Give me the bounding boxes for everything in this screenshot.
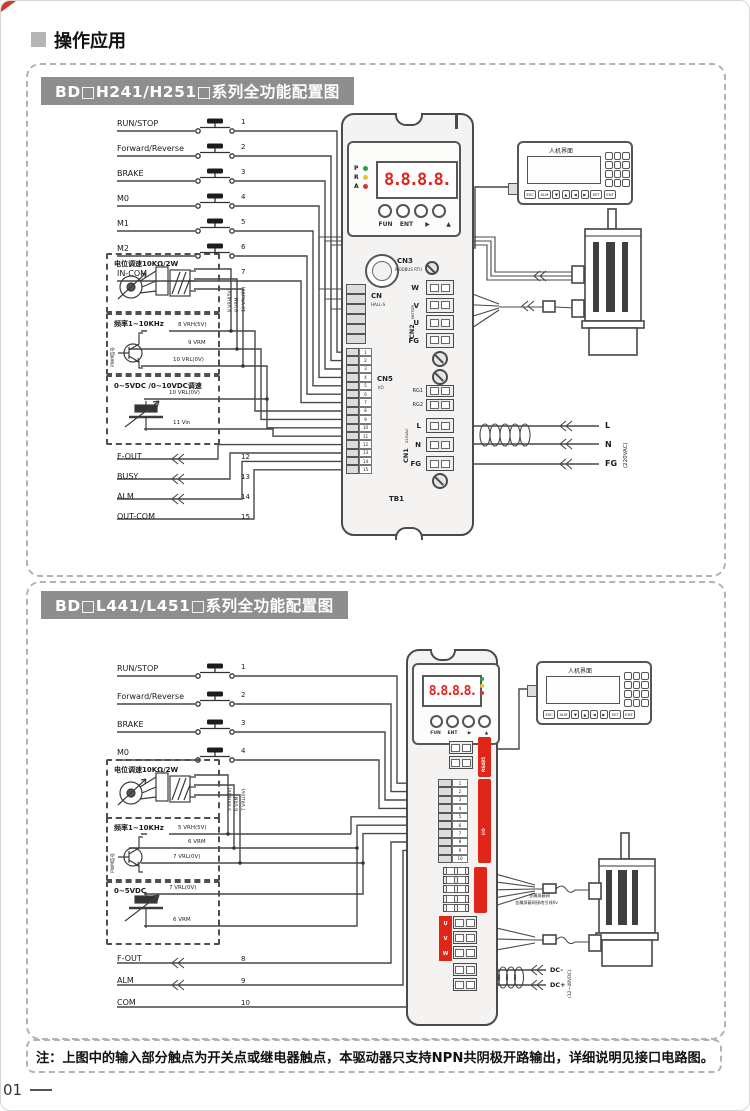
pin-label: 6 VRM bbox=[173, 917, 191, 923]
hmi-function-keys: ESCALM▼▲◀▶SETENT bbox=[543, 710, 635, 719]
input-label: Forward/Reverse bbox=[117, 144, 184, 153]
page-number: 01 bbox=[3, 1081, 52, 1099]
rg-pin-labels: RG1RG2 bbox=[397, 385, 423, 413]
pin-number: 9 bbox=[241, 977, 245, 985]
input-label: RUN/STOP bbox=[117, 119, 158, 128]
diagram1-outputs: F-OUT 12 BUSY 13 ALM 14 OUT-COM 15 bbox=[111, 451, 271, 531]
pin-number: 13 bbox=[241, 473, 250, 481]
output-label: ALM bbox=[117, 976, 134, 985]
button-label: FUN bbox=[427, 731, 444, 736]
input-signal-row: M1 5 bbox=[111, 218, 271, 243]
button-labels: FUNENT▶▲ bbox=[375, 221, 459, 228]
pwm-side-label: PWM信号 bbox=[110, 853, 116, 873]
pin-number: 4 bbox=[241, 747, 245, 755]
up-button bbox=[432, 204, 446, 218]
pin-label: 7 VRL(0V) bbox=[169, 885, 196, 891]
dc-voltage-label: (12~48VDC) bbox=[568, 970, 573, 998]
led-dot bbox=[480, 677, 484, 681]
terminal-cell: 1 bbox=[346, 348, 372, 356]
dc-supply-label: DC+ bbox=[550, 978, 566, 993]
screw-terminal-icon bbox=[432, 473, 448, 489]
hmi-key: ALM bbox=[538, 190, 551, 199]
clamp-terminal bbox=[426, 333, 454, 348]
hmi-key: ENT bbox=[604, 190, 617, 199]
output-signal-row: ALM 14 bbox=[111, 491, 271, 511]
seven-segment-display: 8.8.8.8. bbox=[376, 161, 458, 199]
pin-number: 15 bbox=[241, 513, 250, 521]
ent-button bbox=[396, 204, 410, 218]
right-button bbox=[414, 204, 428, 218]
power-connector bbox=[453, 916, 477, 959]
dc-source-symbol bbox=[108, 377, 218, 443]
input-signal-row: BRAKE 3 bbox=[111, 168, 271, 193]
rg-pin-label: RG2 bbox=[397, 399, 423, 413]
hmi-key: ESC bbox=[543, 710, 555, 719]
pin-number: 10 bbox=[241, 999, 250, 1007]
terminal-cell: 9 bbox=[346, 415, 372, 423]
terminal-cell: 3 bbox=[438, 796, 468, 804]
switch-icon bbox=[195, 192, 235, 210]
switch-icon bbox=[195, 718, 235, 736]
hmi-key: ▼ bbox=[571, 710, 579, 719]
shield-note-line2: 金属屏蔽网接地引线0v bbox=[515, 900, 558, 906]
terminal-cell: 8 bbox=[346, 407, 372, 415]
cn3-sub-label: MODBUS RTU bbox=[395, 267, 422, 272]
hmi-lcd-screen bbox=[527, 156, 601, 184]
led-dot bbox=[363, 175, 368, 180]
pin-number: 2 bbox=[241, 691, 245, 699]
pot-pin-rot-label: 7 VRL(0V) bbox=[242, 789, 247, 811]
terminal-cell: 5 bbox=[346, 382, 372, 390]
page-number-dash bbox=[30, 1089, 52, 1091]
clamp-terminal bbox=[426, 315, 454, 330]
input-label: M1 bbox=[117, 219, 129, 228]
hmi-key: ESC bbox=[524, 190, 536, 199]
ac-supply-label: L bbox=[605, 417, 617, 436]
input-signal-row: RUN/STOP 1 bbox=[111, 663, 271, 691]
hmi-key: ▲ bbox=[562, 190, 570, 199]
display-digits: 8.8.8.8. bbox=[429, 684, 476, 699]
hmi-key: SET bbox=[590, 190, 602, 199]
hmi-lcd-screen bbox=[546, 676, 620, 704]
rg-terminal-blocks bbox=[426, 385, 454, 413]
potentiometer-symbol bbox=[108, 255, 218, 311]
input-label: M0 bbox=[117, 748, 129, 757]
clamp-terminal bbox=[426, 280, 454, 295]
pin-label: 10 VRL(0V) bbox=[169, 390, 200, 396]
clamp-terminal bbox=[426, 298, 454, 313]
button-label: ▲ bbox=[438, 221, 459, 228]
button-labels: FUNENT▶▲ bbox=[427, 731, 495, 736]
ac-terminal-blocks bbox=[426, 418, 454, 475]
pin-number: 6 bbox=[241, 243, 245, 251]
rs485-strip-label: RS485 bbox=[481, 757, 486, 772]
hmi-key: ▶ bbox=[581, 190, 589, 199]
diagram2-outputs: F-OUT 8 ALM 9 COM 10 bbox=[111, 953, 271, 1019]
seven-segment-display: 8.8.8.8. bbox=[422, 675, 482, 707]
vdc-box: 0~5VDC /0~10VDC调速 bbox=[106, 375, 220, 445]
output-label: OUT-COM bbox=[117, 512, 155, 521]
led-row: P bbox=[354, 165, 374, 174]
status-leds: P R A bbox=[354, 165, 374, 192]
terminal-cell: 6 bbox=[438, 821, 468, 829]
hmi-title: 人机界面 bbox=[549, 146, 573, 155]
led-label: R bbox=[354, 174, 359, 181]
terminal-cell: 2 bbox=[438, 787, 468, 795]
hmi-key: ALM bbox=[557, 710, 570, 719]
dc-connector bbox=[453, 963, 477, 991]
cn3-label: CN3 bbox=[397, 257, 413, 265]
dc-supply-labels: DC-DC+ bbox=[550, 963, 566, 993]
cn3-round-connector bbox=[365, 254, 399, 288]
terminal-cell: 15 bbox=[346, 465, 372, 473]
corner-mark bbox=[1, 1, 16, 12]
pin-label: 11 Vin bbox=[173, 420, 190, 426]
footer-note: 注：上图中的输入部分触点为开关点或继电器触点，本驱动器只支持NPN共阴极开路输出… bbox=[36, 1047, 714, 1066]
hmi-function-keys: ESCALM▼▲◀▶SETENT bbox=[524, 190, 616, 199]
pin-label: 5 VRH(5V) bbox=[178, 825, 207, 831]
cn5-label: CN5 bbox=[377, 375, 393, 383]
pin-label: 10 VRL(0V) bbox=[173, 357, 204, 363]
clamp-terminal bbox=[426, 437, 454, 452]
terminal-cell: 4 bbox=[438, 804, 468, 812]
output-signal-row: BUSY 13 bbox=[111, 471, 271, 491]
screw-terminal-icon bbox=[432, 351, 448, 367]
clamp-terminal bbox=[426, 456, 454, 471]
shield-note-line1: 金属屏蔽网 bbox=[529, 893, 550, 899]
button-label: ▲ bbox=[478, 731, 495, 736]
input-label: Forward/Reverse bbox=[117, 692, 184, 701]
terminal-cell: 10 bbox=[438, 855, 468, 863]
output-label: BUSY bbox=[117, 472, 138, 481]
terminal-cell: 8 bbox=[438, 838, 468, 846]
output-signal-row: F-OUT 8 bbox=[111, 953, 271, 975]
page-title: 操作应用 bbox=[54, 27, 126, 53]
ac-supply-label: N bbox=[605, 436, 617, 455]
input-label: BRAKE bbox=[117, 720, 144, 729]
cn5-sub: I/O bbox=[378, 385, 384, 390]
pot-speed-box: 电位调速10KΩ/2W bbox=[106, 759, 220, 819]
vdc-box: 0~5VDC bbox=[106, 881, 220, 945]
pwm-side-label: PWM信号 bbox=[110, 347, 116, 367]
hmi-key: ▶ bbox=[600, 710, 608, 719]
pin-number: 2 bbox=[241, 143, 245, 151]
pin-number: 14 bbox=[241, 493, 250, 501]
button-label: ▶ bbox=[417, 221, 438, 228]
switch-icon bbox=[195, 117, 235, 135]
led-dot bbox=[480, 684, 484, 688]
cn-hall-connector bbox=[346, 284, 366, 344]
led-row: R bbox=[354, 174, 374, 183]
clamp-terminal bbox=[426, 399, 454, 411]
led-label: A bbox=[354, 183, 359, 190]
pin-label: 9 VRM bbox=[188, 340, 206, 346]
driver-front-panel: P R A 8.8.8.8. FUNENT▶▲ bbox=[347, 141, 461, 237]
input-signal-row: BRAKE 3 bbox=[111, 719, 271, 747]
pin-number: 7 bbox=[241, 268, 245, 276]
io-terminal-strip: 1 2 3 4 5 6 7 8 bbox=[438, 779, 468, 863]
cn-hall-label: CN bbox=[371, 292, 382, 300]
uvw-label: W bbox=[443, 951, 449, 957]
rg-pin-label: RG1 bbox=[397, 385, 423, 399]
pot-pin-rot-label: 9 VRM bbox=[235, 298, 240, 312]
clamp-terminal bbox=[426, 385, 454, 397]
switch-icon bbox=[195, 690, 235, 708]
hmi-key: ◀ bbox=[590, 710, 598, 719]
switch-icon bbox=[195, 167, 235, 185]
pot-pin-rot-label: 5 VRH(5V) bbox=[228, 788, 233, 811]
led-dot bbox=[363, 184, 368, 189]
right-button bbox=[462, 715, 475, 728]
hall-strip bbox=[474, 867, 487, 913]
ac-supply-label: FG bbox=[605, 455, 617, 474]
diagram2-title: BD□L441/L451□系列全功能配置图 bbox=[41, 591, 348, 619]
button-label: ENT bbox=[396, 221, 417, 228]
terminal-cell: 4 bbox=[346, 373, 372, 381]
pin-number: 1 bbox=[241, 663, 245, 671]
hmi-title: 人机界面 bbox=[568, 666, 592, 675]
terminal-cell: 7 bbox=[438, 829, 468, 837]
mount-notch bbox=[430, 649, 456, 661]
diagram1-title: BD□H241/H251□系列全功能配置图 bbox=[41, 77, 354, 105]
hmi-keypad bbox=[624, 672, 649, 707]
terminal-cell: 11 bbox=[346, 432, 372, 440]
pin-label: 6 VRM bbox=[188, 839, 206, 845]
pin-number: 4 bbox=[241, 193, 245, 201]
pin-number: 12 bbox=[241, 453, 250, 461]
input-signal-row: Forward/Reverse 2 bbox=[111, 143, 271, 168]
button-label: ▶ bbox=[461, 731, 478, 736]
output-label: ALM bbox=[117, 492, 134, 501]
terminal-cell: 12 bbox=[346, 440, 372, 448]
tb1-label: TB1 bbox=[389, 495, 404, 503]
pot-pin-rot-label: 8 VRH(5V) bbox=[228, 289, 233, 312]
cn2-rot-label: CN2 MOTOR bbox=[399, 305, 418, 339]
hmi-keypad bbox=[605, 152, 630, 187]
led-dot bbox=[480, 691, 484, 695]
terminal-cell: 2 bbox=[346, 356, 372, 364]
output-signal-row: OUT-COM 15 bbox=[111, 511, 271, 531]
dc-source-symbol bbox=[108, 883, 218, 943]
output-label: COM bbox=[117, 998, 136, 1007]
hall-connector bbox=[443, 867, 469, 912]
hmi-panel: 人机界面 ESCALM▼▲◀▶SETENT bbox=[536, 661, 652, 725]
pin-number: 8 bbox=[241, 955, 245, 963]
button-label: ENT bbox=[444, 731, 461, 736]
led-label: P bbox=[354, 165, 358, 172]
hmi-key: ▲ bbox=[581, 710, 589, 719]
terminal-cell: 5 bbox=[438, 813, 468, 821]
cn-hall-sub: HALL-S bbox=[371, 302, 385, 307]
terminal-cell: 13 bbox=[346, 449, 372, 457]
pot-speed-box: 电位调速10KΩ/2W bbox=[106, 253, 220, 313]
input-label: M2 bbox=[117, 244, 129, 253]
pin-label: 8 VRH(5V) bbox=[178, 322, 207, 328]
pot-pin-rot-label: 6 VRM bbox=[235, 797, 240, 811]
pin-number: 5 bbox=[241, 218, 245, 226]
hmi-panel: 人机界面 ESCALM▼▲◀▶SETENT bbox=[517, 141, 633, 205]
switch-icon bbox=[195, 662, 235, 680]
cn1-rot-label: CN1 220VAC bbox=[393, 428, 412, 463]
io-strip bbox=[478, 779, 491, 863]
terminal-cell: 7 bbox=[346, 398, 372, 406]
fun-button bbox=[430, 715, 443, 728]
terminal-cell: 10 bbox=[346, 424, 372, 432]
pot-pin-rot-label: 10 VRL(0V) bbox=[242, 287, 247, 312]
uvw-label: V bbox=[444, 936, 448, 942]
potentiometer-symbol bbox=[108, 761, 218, 817]
pin-label: 7 VRL(0V) bbox=[173, 854, 200, 860]
pin-number: 1 bbox=[241, 118, 245, 126]
tab-mark bbox=[455, 115, 458, 129]
screw-terminal-icon bbox=[432, 369, 448, 385]
hmi-key: SET bbox=[609, 710, 621, 719]
header-bullet-icon bbox=[31, 32, 46, 47]
hmi-cable-port bbox=[527, 685, 537, 697]
output-label: F-OUT bbox=[117, 452, 142, 461]
uvw-label: U bbox=[443, 921, 447, 927]
screw-terminal-icon bbox=[425, 261, 439, 275]
input-label: M0 bbox=[117, 194, 129, 203]
output-signal-row: F-OUT 12 bbox=[111, 451, 271, 471]
output-signal-row: COM 10 bbox=[111, 997, 271, 1019]
display-digits: 8.8.8.8. bbox=[384, 170, 450, 190]
motor-terminal-blocks bbox=[426, 280, 454, 350]
led-row: A bbox=[354, 183, 374, 192]
output-label: F-OUT bbox=[117, 954, 142, 963]
fun-button bbox=[378, 204, 392, 218]
footer-note-box: 注：上图中的输入部分触点为开关点或继电器触点，本驱动器只支持NPN共阴极开路输出… bbox=[26, 1039, 722, 1073]
terminal-cell: 1 bbox=[438, 779, 468, 787]
button-label: FUN bbox=[375, 221, 396, 228]
io-strip-label: I/O bbox=[481, 828, 486, 835]
motor-pin-label: W bbox=[399, 280, 419, 298]
clamp-terminal bbox=[426, 418, 454, 433]
up-button bbox=[478, 715, 491, 728]
hmi-cable-port bbox=[508, 183, 518, 195]
cn5-terminal-strip: 1 2 3 4 5 6 7 8 9 10 11 12 bbox=[346, 348, 372, 474]
driver-front-panel: 8.8.8.8. FUNENT▶▲ bbox=[412, 663, 500, 745]
terminal-cell: 3 bbox=[346, 365, 372, 373]
ent-button bbox=[446, 715, 459, 728]
hmi-key: ◀ bbox=[571, 190, 579, 199]
uvw-strip: UVW bbox=[439, 916, 452, 961]
input-signal-row: Forward/Reverse 2 bbox=[111, 691, 271, 719]
input-label: RUN/STOP bbox=[117, 664, 158, 673]
hmi-key: ENT bbox=[623, 710, 636, 719]
mount-notch bbox=[395, 113, 423, 126]
switch-icon bbox=[195, 217, 235, 235]
pin-number: 3 bbox=[241, 168, 245, 176]
input-signal-row: M0 4 bbox=[111, 193, 271, 218]
output-signal-row: ALM 9 bbox=[111, 975, 271, 997]
pin-number: 3 bbox=[241, 719, 245, 727]
manual-page: 操作应用 BD□H241/H251□系列全功能配置图 BD□L441/L451□… bbox=[0, 0, 750, 1111]
dc-supply-label: DC- bbox=[550, 963, 566, 978]
terminal-cell: 14 bbox=[346, 457, 372, 465]
ac-supply-labels: LNFG bbox=[605, 417, 617, 474]
led-dot bbox=[363, 166, 368, 171]
input-label: BRAKE bbox=[117, 169, 144, 178]
ac-voltage-label: (220VAC) bbox=[623, 442, 629, 468]
switch-icon bbox=[195, 142, 235, 160]
terminal-cell: 6 bbox=[346, 390, 372, 398]
hmi-key: ▼ bbox=[552, 190, 560, 199]
terminal-cell: 9 bbox=[438, 846, 468, 854]
rs485-connector bbox=[449, 741, 473, 769]
mount-notch bbox=[395, 527, 423, 540]
input-signal-row: RUN/STOP 1 bbox=[111, 118, 271, 143]
